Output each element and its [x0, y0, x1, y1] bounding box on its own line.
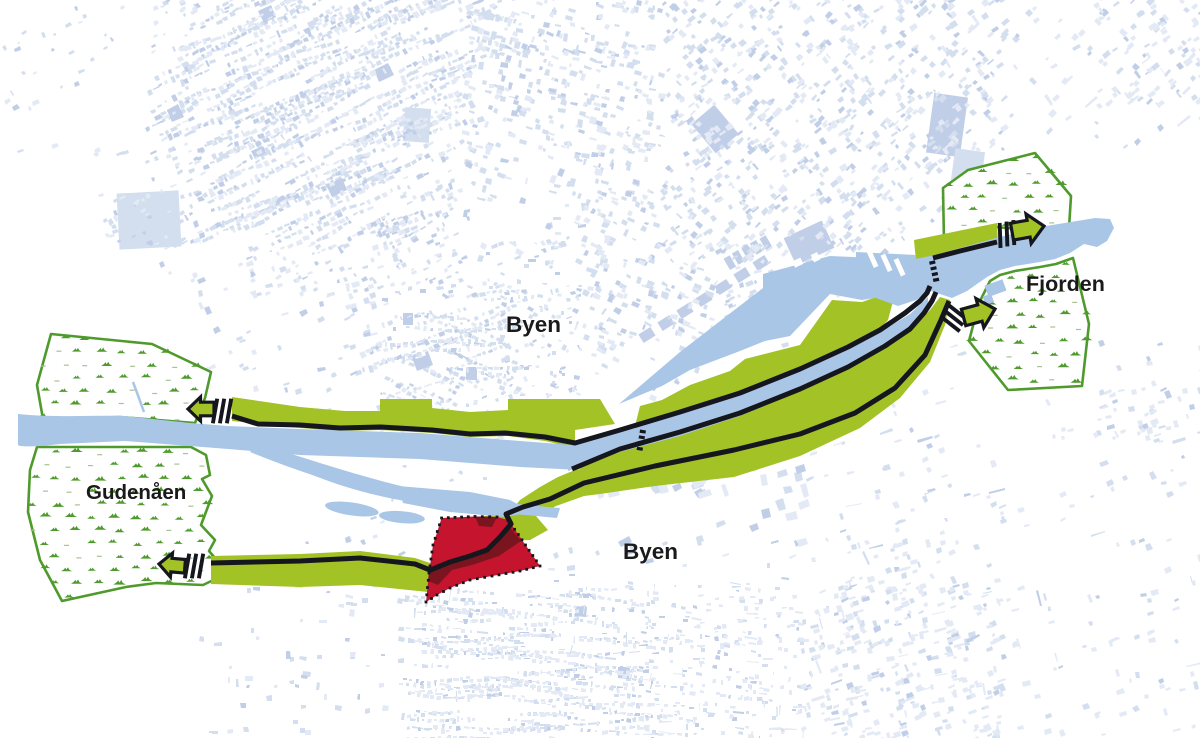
svg-text:Gudenåen: Gudenåen [86, 481, 186, 504]
svg-text:Fjorden: Fjorden [1026, 272, 1105, 296]
svg-text:Byen: Byen [623, 539, 678, 564]
svg-text:Byen: Byen [506, 312, 561, 337]
